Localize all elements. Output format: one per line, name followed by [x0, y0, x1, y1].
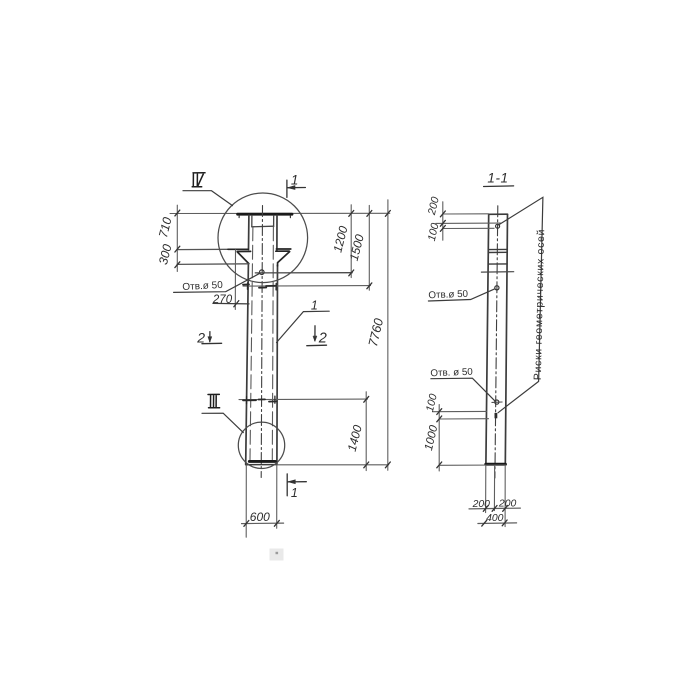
svg-text:Риски геометрических осей: Риски геометрических осей	[533, 229, 547, 381]
svg-text:1200: 1200	[330, 224, 350, 254]
svg-text:2: 2	[318, 331, 327, 347]
svg-text:1: 1	[311, 299, 318, 313]
svg-text:1: 1	[291, 172, 299, 187]
svg-text:200: 200	[472, 499, 491, 510]
svg-text:300: 300	[156, 243, 175, 266]
svg-text:100: 100	[424, 393, 440, 413]
svg-text:Отв.ø 50: Отв.ø 50	[182, 280, 223, 293]
svg-text:100: 100	[426, 222, 442, 242]
svg-text:600: 600	[250, 510, 270, 524]
svg-text:200: 200	[426, 196, 442, 217]
svg-text:1500: 1500	[347, 233, 367, 263]
svg-text:1: 1	[291, 486, 298, 500]
svg-text:200: 200	[498, 499, 517, 510]
svg-text:1400: 1400	[345, 423, 365, 453]
svg-text:Отв. ø 50: Отв. ø 50	[430, 367, 473, 379]
svg-text:400: 400	[486, 513, 504, 524]
svg-text:710: 710	[156, 216, 175, 239]
svg-text:1-1: 1-1	[487, 171, 508, 186]
svg-text:7760: 7760	[365, 316, 386, 348]
svg-text:1000: 1000	[423, 424, 441, 452]
